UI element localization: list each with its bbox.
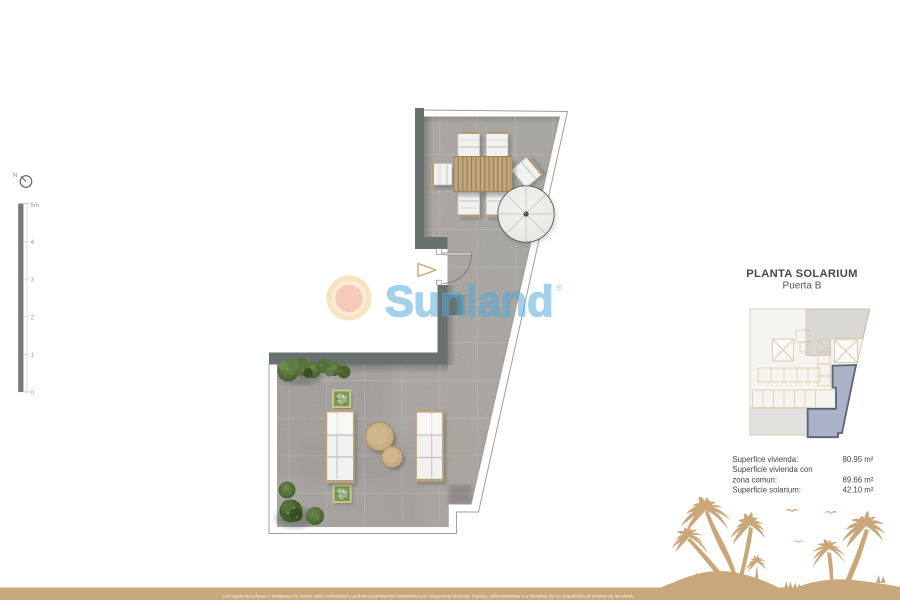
svg-text:PLANTA SOLARIUM: PLANTA SOLARIUM xyxy=(746,268,857,280)
svg-text:Superficie vivienda con: Superficie vivienda con xyxy=(732,465,812,474)
svg-text:Los siguientes planos e imágen: Los siguientes planos e imágenes no tien… xyxy=(222,593,633,598)
svg-text:2: 2 xyxy=(31,314,35,321)
svg-text:zona comun:: zona comun: xyxy=(732,475,777,484)
svg-text:1: 1 xyxy=(31,352,35,359)
svg-text:4: 4 xyxy=(31,239,35,246)
svg-text:5m: 5m xyxy=(31,202,40,209)
svg-text:Sunland: Sunland xyxy=(385,278,553,326)
svg-text:Superfice vivienda:: Superfice vivienda: xyxy=(732,455,798,464)
svg-text:80.95 m²: 80.95 m² xyxy=(843,455,874,464)
svg-text:N: N xyxy=(13,173,17,179)
svg-text:89.66 m²: 89.66 m² xyxy=(843,475,874,484)
svg-text:Superficie solarium:: Superficie solarium: xyxy=(732,486,800,495)
svg-text:®: ® xyxy=(556,283,563,293)
svg-text:Puerta B: Puerta B xyxy=(783,281,822,292)
svg-text:42.10 m²: 42.10 m² xyxy=(843,486,874,495)
svg-text:0: 0 xyxy=(31,390,35,397)
svg-text:3: 3 xyxy=(31,277,35,284)
